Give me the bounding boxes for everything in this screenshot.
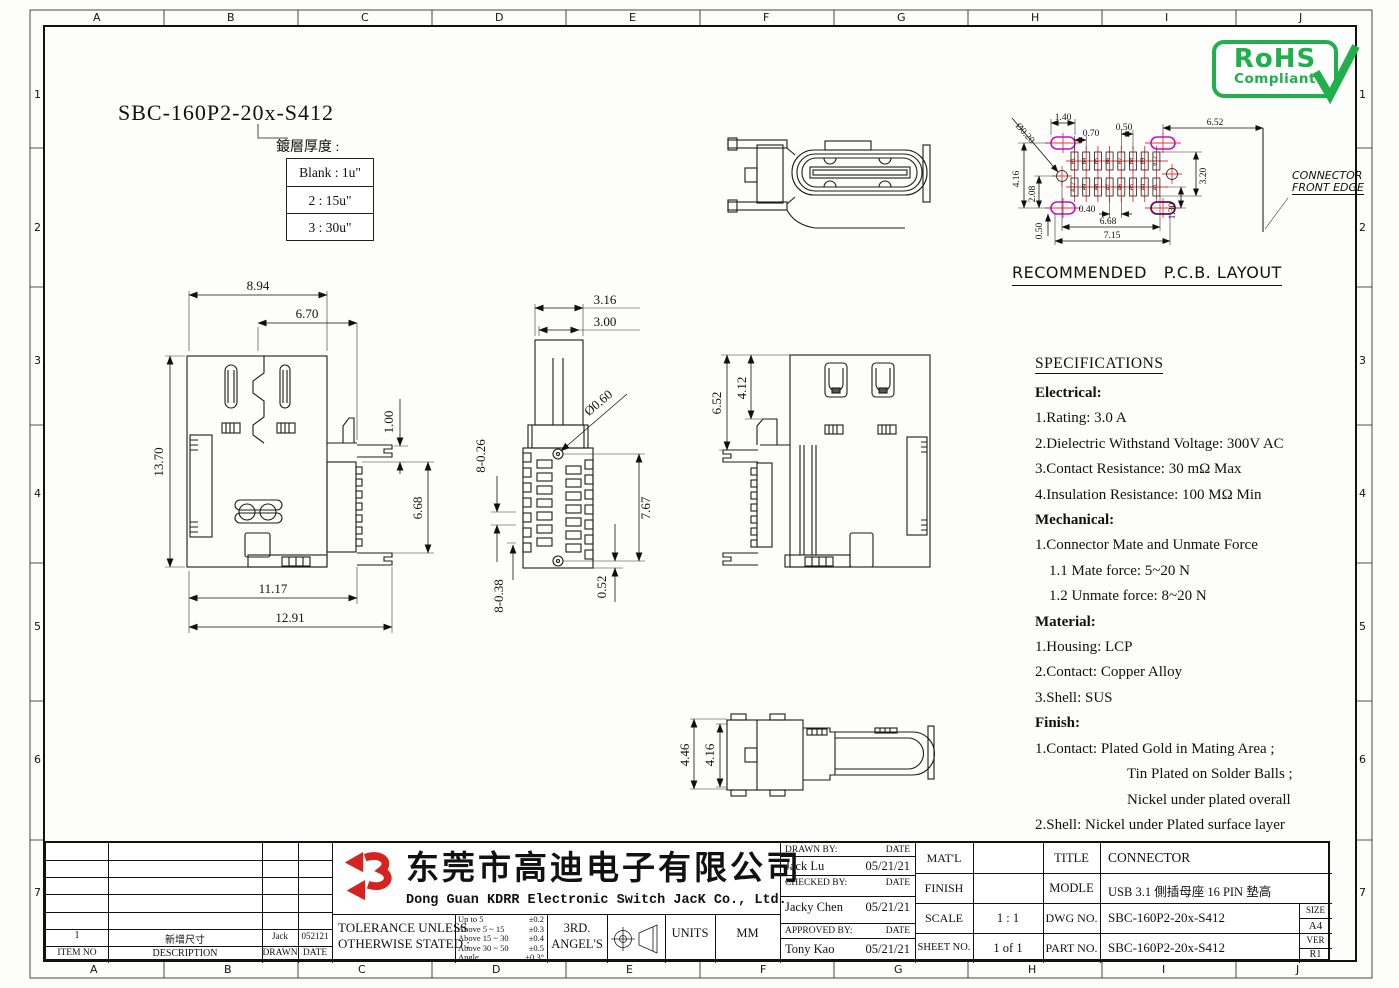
- dim-label: 6.52: [1207, 118, 1224, 128]
- view-side: 6.52 4.12: [705, 345, 955, 635]
- view-top: [700, 125, 960, 240]
- dim-label: 1.00: [381, 411, 396, 434]
- dim-label: 8.94: [247, 278, 270, 293]
- drawn-by-row: Jack Lu05/21/21: [780, 859, 915, 874]
- zone-col: C: [361, 11, 369, 24]
- checked-by-value: Jacky Chen: [785, 900, 843, 915]
- zone-col: B: [227, 11, 235, 24]
- pad-label: B12: [1152, 156, 1158, 166]
- projection-line1: 3RD.: [547, 921, 607, 936]
- tolerance-value: ±0.3°: [525, 953, 544, 963]
- pad-label: A12: [1071, 182, 1077, 192]
- pcb-layout-title: RECOMMENDED P.C.B. LAYOUT: [1012, 263, 1282, 286]
- dwg-label: DWG NO.: [1043, 911, 1100, 926]
- view-profile: 4.46 4.16: [680, 695, 950, 805]
- revision-item: 1: [46, 930, 108, 941]
- spec-line: Finish:: [1035, 711, 1375, 736]
- pad-label: B7: [1117, 158, 1123, 165]
- plating-option: 3 : 30u": [287, 213, 373, 240]
- date-label: DATE: [886, 926, 910, 936]
- drawn-date-value: 05/21/21: [866, 859, 910, 874]
- sheet-value: 1 of 1: [973, 941, 1043, 956]
- spec-line: 1.Contact: Plated Gold in Mating Area ;: [1035, 737, 1375, 762]
- revision-header-item: ITEM NO: [46, 948, 108, 958]
- dim-label: 4.16: [702, 743, 717, 766]
- plating-option: Blank : 1u": [287, 159, 373, 186]
- dim-label: 11.17: [259, 581, 288, 596]
- zone-col: E: [626, 963, 633, 976]
- title-label: TITLE: [1043, 851, 1100, 866]
- tolerance-label-line1: TOLERANCE UNLESS: [338, 920, 467, 936]
- zone-col: E: [629, 11, 636, 24]
- spec-line: 4.Insulation Resistance: 100 MΩ Min: [1035, 483, 1375, 508]
- revision-description: 新增尺寸: [108, 931, 262, 946]
- zone-col: G: [894, 963, 903, 976]
- zone-row: 7: [1359, 886, 1366, 899]
- tolerance-label-line2: OTHERWISE STATED :: [338, 936, 470, 952]
- dim-label: 4.12: [734, 377, 749, 400]
- dim-label: 0.52: [594, 576, 609, 599]
- projection-line2: ANGEL'S: [547, 937, 607, 952]
- company-name-cn: 东莞市高迪电子有限公司: [406, 848, 802, 888]
- zone-col: F: [763, 11, 769, 24]
- scale-value: 1 : 1: [973, 911, 1043, 926]
- finish-label: FINISH: [915, 881, 973, 896]
- spec-line: 3.Shell: SUS: [1035, 686, 1375, 711]
- units-value: MM: [715, 926, 780, 941]
- matl-label: MAT'L: [915, 851, 973, 866]
- zone-col: I: [1162, 963, 1165, 976]
- approved-by-header: APPROVED BY:DATE: [780, 926, 915, 936]
- spec-line: 1.Housing: LCP: [1035, 635, 1375, 660]
- pad-label: A8: [1094, 184, 1100, 191]
- spec-line: Tin Plated on Solder Balls ;: [1035, 762, 1375, 787]
- drawing-sheet: A B C D E F G H I J A B C D E F G H I J …: [0, 0, 1399, 988]
- tolerance-range: Angle: [458, 953, 479, 963]
- checked-by-label: CHECKED BY:: [785, 878, 847, 888]
- part-value: SBC-160P2-20x-S412: [1108, 940, 1225, 956]
- revision-header-description: DESCRIPTION: [108, 948, 262, 959]
- specifications: SPECIFICATIONS Electrical: 1.Rating: 3.0…: [1035, 355, 1375, 838]
- spec-line: 1.1 Mate force: 5~20 N: [1035, 559, 1375, 584]
- spec-line: 2.Contact: Copper Alloy: [1035, 660, 1375, 685]
- spec-line: 2.Dielectric Withstand Voltage: 300V AC: [1035, 432, 1375, 457]
- dim-label: 6.70: [296, 306, 319, 321]
- pad-label: A4: [1141, 184, 1147, 191]
- pad-label: B4: [1082, 158, 1088, 165]
- dim-label: 1.40: [1055, 113, 1072, 123]
- third-angle-projection-icon: [611, 921, 661, 957]
- drawn-by-value: Jack Lu: [785, 859, 824, 874]
- zone-row: 2: [34, 221, 41, 234]
- part-code-title: SBC-160P2-20x-S412: [118, 100, 334, 126]
- pad-label: B5: [1094, 158, 1100, 165]
- dim-label: 12.91: [275, 610, 304, 625]
- spec-line: Nickel under plated overall: [1035, 788, 1375, 813]
- checked-by-header: CHECKED BY:DATE: [780, 878, 915, 888]
- approved-date-value: 05/21/21: [866, 942, 910, 957]
- units-label: UNITS: [665, 926, 715, 941]
- plating-option: 2 : 15u": [287, 186, 373, 213]
- zone-row: 7: [34, 886, 41, 899]
- pad-label: B8: [1129, 158, 1135, 165]
- sheet-label: SHEET NO.: [915, 942, 973, 953]
- tolerance-row: Angle±0.3°: [458, 953, 544, 963]
- modle-label: MODLE: [1043, 881, 1100, 896]
- dim-label: 3.16: [594, 292, 617, 307]
- date-label: DATE: [886, 878, 910, 888]
- scale-label: SCALE: [915, 911, 973, 926]
- zone-row: 3: [34, 354, 41, 367]
- zone-row: 1: [34, 88, 41, 101]
- spec-line: Material:: [1035, 610, 1375, 635]
- pad-label: B6: [1106, 158, 1112, 165]
- zone-row: 5: [34, 620, 41, 633]
- zone-col: B: [224, 963, 232, 976]
- modle-value: USB 3.1 側插母座 16 PIN 墊高: [1108, 881, 1271, 900]
- company-name-en: Dong Guan KDRR Electronic Switch JacK Co…: [406, 893, 787, 908]
- spec-line: Electrical:: [1035, 381, 1375, 406]
- zone-row: 4: [34, 487, 41, 500]
- pad-label: A7: [1106, 184, 1112, 191]
- spec-line: 2.Shell: Nickel under Plated surface lay…: [1035, 813, 1375, 838]
- pad-label: A5: [1129, 184, 1135, 191]
- dim-label: 0.40: [1079, 205, 1096, 215]
- title-block: 1 新增尺寸 Jack 052121 ITEM NO DESCRIPTION D…: [44, 841, 1330, 961]
- zone-col: D: [495, 11, 503, 24]
- spec-line: Mechanical:: [1035, 508, 1375, 533]
- dim-label: 7.67: [638, 496, 653, 519]
- revision-drawn: Jack: [262, 931, 298, 941]
- date-label: DATE: [886, 845, 910, 855]
- dim-label: 7.15: [1104, 231, 1121, 241]
- dim-label: 0.50: [1035, 222, 1045, 239]
- revision-header-drawn: DRAWN: [262, 948, 298, 958]
- dim-label: 6.52: [709, 392, 724, 415]
- zone-row: 6: [34, 753, 41, 766]
- zone-col: C: [358, 963, 366, 976]
- dim-label: 3.20: [1199, 167, 1209, 184]
- dim-label: 8-0.26: [473, 439, 488, 473]
- revision-header-date: DATE: [298, 948, 332, 958]
- zone-col: I: [1165, 11, 1168, 24]
- zone-col: D: [492, 963, 500, 976]
- spec-line: 1.2 Unmate force: 8~20 N: [1035, 584, 1375, 609]
- revision-date: 052121: [298, 931, 332, 941]
- drawn-by-label: DRAWN BY:: [785, 845, 837, 855]
- size-value: A4: [1299, 920, 1332, 932]
- dim-label: 13.70: [151, 447, 166, 476]
- pad-label: A6: [1117, 184, 1123, 191]
- spec-line: 1.Rating: 3.0 A: [1035, 406, 1375, 431]
- dim-label: 6.68: [410, 497, 425, 520]
- zone-col: H: [1028, 963, 1036, 976]
- dim-label: 3.00: [594, 314, 617, 329]
- dim-label: 0.70: [1083, 129, 1100, 139]
- dim-label: 6.68: [1100, 217, 1117, 227]
- dwg-value: SBC-160P2-20x-S412: [1108, 910, 1225, 926]
- title-value: CONNECTOR: [1108, 850, 1190, 866]
- dim-label: 4.46: [677, 743, 692, 766]
- dim-label: 4.16: [1012, 170, 1022, 187]
- view-bottom: 3.16 3.00 Ø0.60 8-0.26 8-0.38 7.67 0.52: [455, 280, 690, 645]
- checked-date-value: 05/21/21: [866, 900, 910, 915]
- ver-label: VER: [1299, 935, 1332, 945]
- zone-col: J: [1299, 11, 1302, 24]
- zone-col: J: [1296, 963, 1299, 976]
- pad-label: B9: [1141, 158, 1147, 165]
- zone-col: H: [1031, 11, 1039, 24]
- dim-label: 0.50: [1116, 123, 1133, 133]
- front-edge-line2: FRONT EDGE: [1292, 182, 1364, 195]
- drawn-by-header: DRAWN BY:DATE: [780, 845, 915, 855]
- specifications-title: SPECIFICATIONS: [1035, 355, 1163, 374]
- pad-label: A9: [1082, 184, 1088, 191]
- approved-by-label: APPROVED BY:: [785, 926, 853, 936]
- spec-line: 1.Connector Mate and Unmate Force: [1035, 533, 1375, 558]
- plating-table: Blank : 1u" 2 : 15u" 3 : 30u": [286, 158, 374, 241]
- zone-col: F: [760, 963, 766, 976]
- dim-label: Ø0.60: [581, 386, 615, 418]
- dim-label: 8-0.38: [491, 579, 506, 613]
- approved-by-row: Tony Kao05/21/21: [780, 942, 915, 957]
- zone-row: 2: [1359, 221, 1366, 234]
- view-front: 8.94 6.70 13.70 1.00 6.68 11.17 12.91: [140, 275, 460, 645]
- zone-col: A: [90, 963, 98, 976]
- pad-label: B1: [1071, 158, 1077, 165]
- part-label: PART NO.: [1043, 941, 1100, 956]
- spec-line: 3.Contact Resistance: 30 mΩ Max: [1035, 457, 1375, 482]
- approved-by-value: Tony Kao: [785, 942, 834, 957]
- zone-col: A: [93, 11, 101, 24]
- front-edge-note: CONNECTOR FRONT EDGE: [1292, 170, 1364, 195]
- rohs-check-icon: [1312, 42, 1358, 106]
- plating-label: 鍍層厚度 :: [276, 136, 339, 156]
- pad-label: A1: [1152, 184, 1158, 191]
- zone-row: 1: [1359, 88, 1366, 101]
- dim-label: 2.08: [1028, 185, 1038, 202]
- company-logo: [338, 847, 400, 909]
- zone-col: G: [897, 11, 906, 24]
- checked-by-row: Jacky Chen05/21/21: [780, 900, 915, 915]
- ver-value: R1: [1299, 949, 1332, 960]
- dim-label: 1.30: [1168, 202, 1178, 219]
- size-label: SIZE: [1299, 905, 1332, 915]
